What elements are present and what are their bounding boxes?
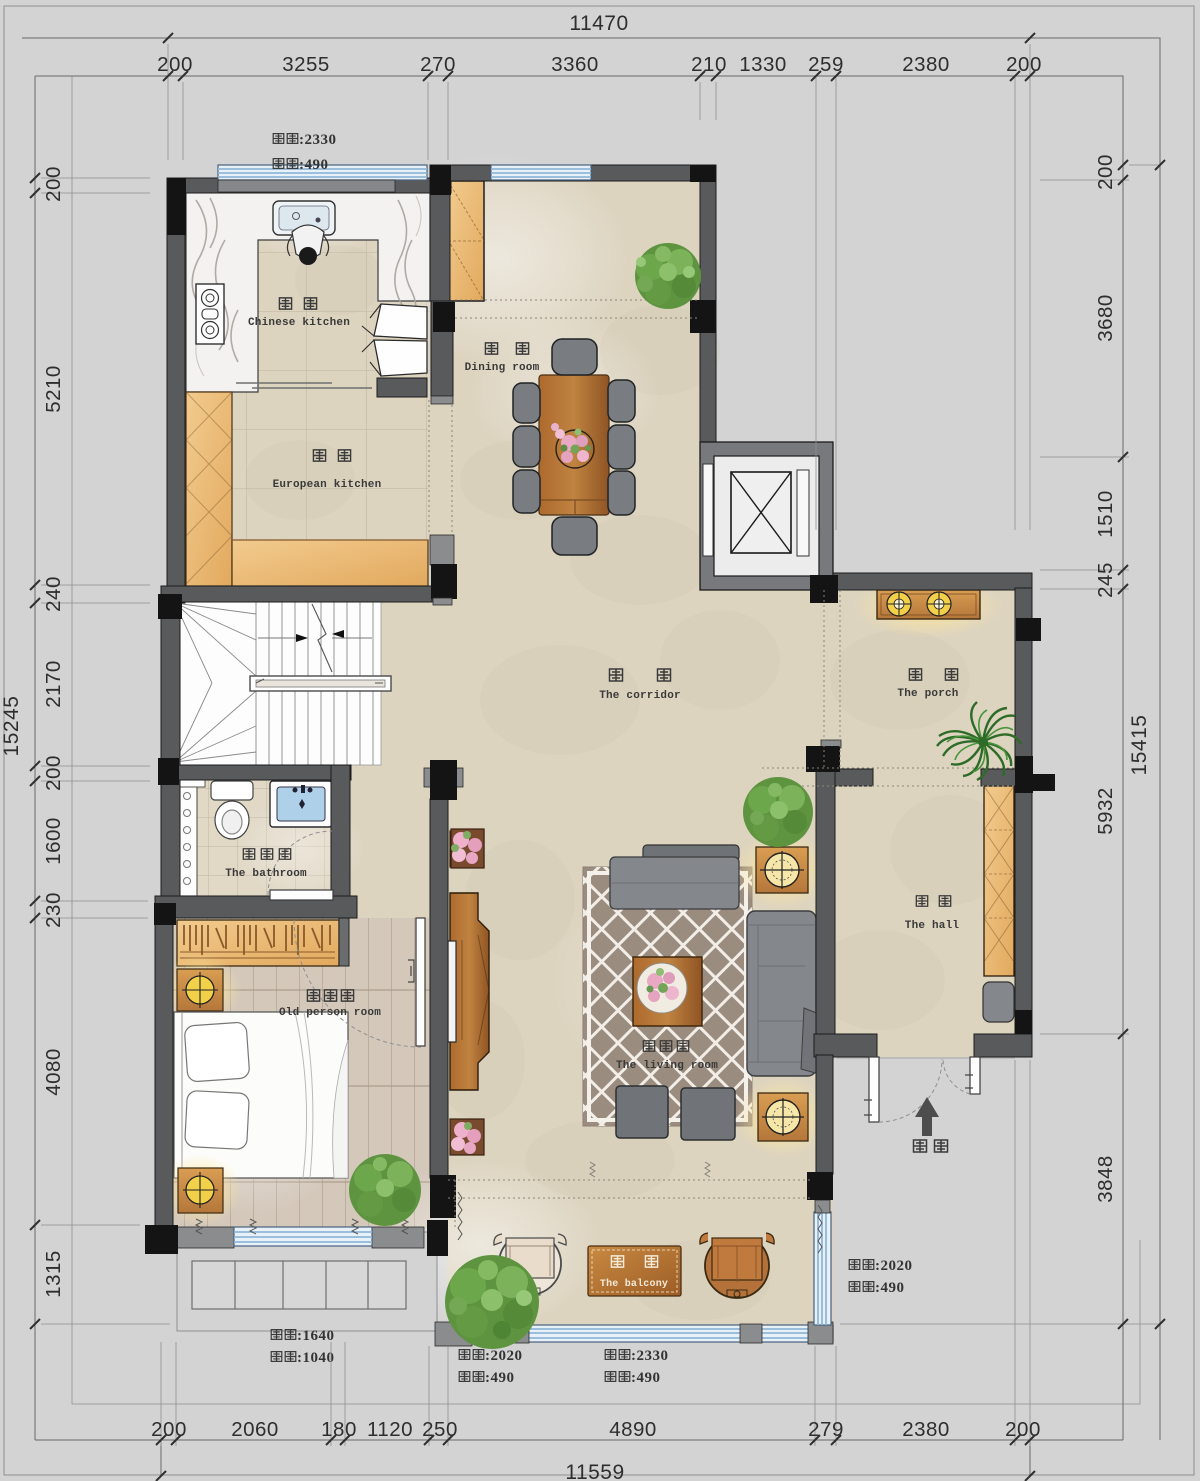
svg-text::490: :490: [631, 1370, 661, 1386]
svg-text:200: 200: [1005, 1418, 1041, 1441]
svg-text:11559: 11559: [565, 1461, 624, 1481]
svg-text:259: 259: [808, 53, 844, 76]
svg-text::490: :490: [875, 1280, 905, 1296]
svg-text:3360: 3360: [551, 53, 599, 76]
svg-text:1330: 1330: [739, 53, 787, 76]
svg-text:230: 230: [42, 892, 65, 928]
svg-text:The balcony: The balcony: [600, 1278, 668, 1290]
svg-text:200: 200: [157, 53, 193, 76]
svg-text:11470: 11470: [569, 12, 628, 35]
svg-text:5932: 5932: [1094, 787, 1117, 835]
svg-text:200: 200: [42, 755, 65, 791]
svg-text:1120: 1120: [367, 1418, 413, 1441]
svg-text:245: 245: [1094, 562, 1117, 598]
svg-text:200: 200: [151, 1418, 187, 1441]
svg-text:The hall: The hall: [905, 920, 960, 932]
svg-text:200: 200: [1006, 53, 1042, 76]
svg-text:15245: 15245: [0, 696, 23, 757]
svg-text:2380: 2380: [902, 1418, 950, 1441]
svg-text:200: 200: [1094, 154, 1117, 190]
svg-text:Dining room: Dining room: [465, 362, 540, 374]
svg-text:2060: 2060: [231, 1418, 279, 1441]
svg-text:200: 200: [42, 166, 65, 202]
svg-text:250: 250: [422, 1418, 458, 1441]
svg-text:270: 270: [420, 53, 456, 76]
svg-text:2170: 2170: [42, 660, 65, 708]
svg-text:The porch: The porch: [897, 688, 958, 700]
svg-text::2330: :2330: [299, 132, 337, 148]
svg-text::2020: :2020: [485, 1348, 523, 1364]
svg-text:Old person room: Old person room: [279, 1007, 381, 1019]
svg-text::490: :490: [485, 1370, 515, 1386]
svg-text:4890: 4890: [609, 1418, 657, 1441]
svg-text:Chinese kitchen: Chinese kitchen: [248, 317, 350, 329]
svg-text::1040: :1040: [297, 1350, 335, 1366]
svg-text::490: :490: [299, 157, 329, 173]
svg-text:5210: 5210: [42, 365, 65, 413]
svg-text:The corridor: The corridor: [599, 690, 681, 702]
svg-text:180: 180: [321, 1418, 357, 1441]
svg-text:The bathroom: The bathroom: [225, 868, 307, 880]
svg-text:2380: 2380: [902, 53, 950, 76]
svg-text:4080: 4080: [42, 1048, 65, 1096]
svg-text:279: 279: [808, 1418, 844, 1441]
svg-text:The living room: The living room: [616, 1060, 718, 1072]
svg-text:1600: 1600: [42, 817, 65, 865]
svg-text:3848: 3848: [1094, 1155, 1117, 1203]
svg-text:15415: 15415: [1128, 715, 1151, 776]
svg-text:210: 210: [691, 53, 727, 76]
svg-text::2020: :2020: [875, 1258, 913, 1274]
svg-text:1315: 1315: [42, 1250, 65, 1298]
svg-text:3255: 3255: [282, 53, 330, 76]
svg-text:3680: 3680: [1094, 294, 1117, 342]
svg-text:European kitchen: European kitchen: [273, 479, 382, 491]
svg-text::1640: :1640: [297, 1328, 335, 1344]
svg-text:1510: 1510: [1094, 490, 1117, 538]
svg-text:240: 240: [42, 576, 65, 612]
svg-text::2330: :2330: [631, 1348, 669, 1364]
